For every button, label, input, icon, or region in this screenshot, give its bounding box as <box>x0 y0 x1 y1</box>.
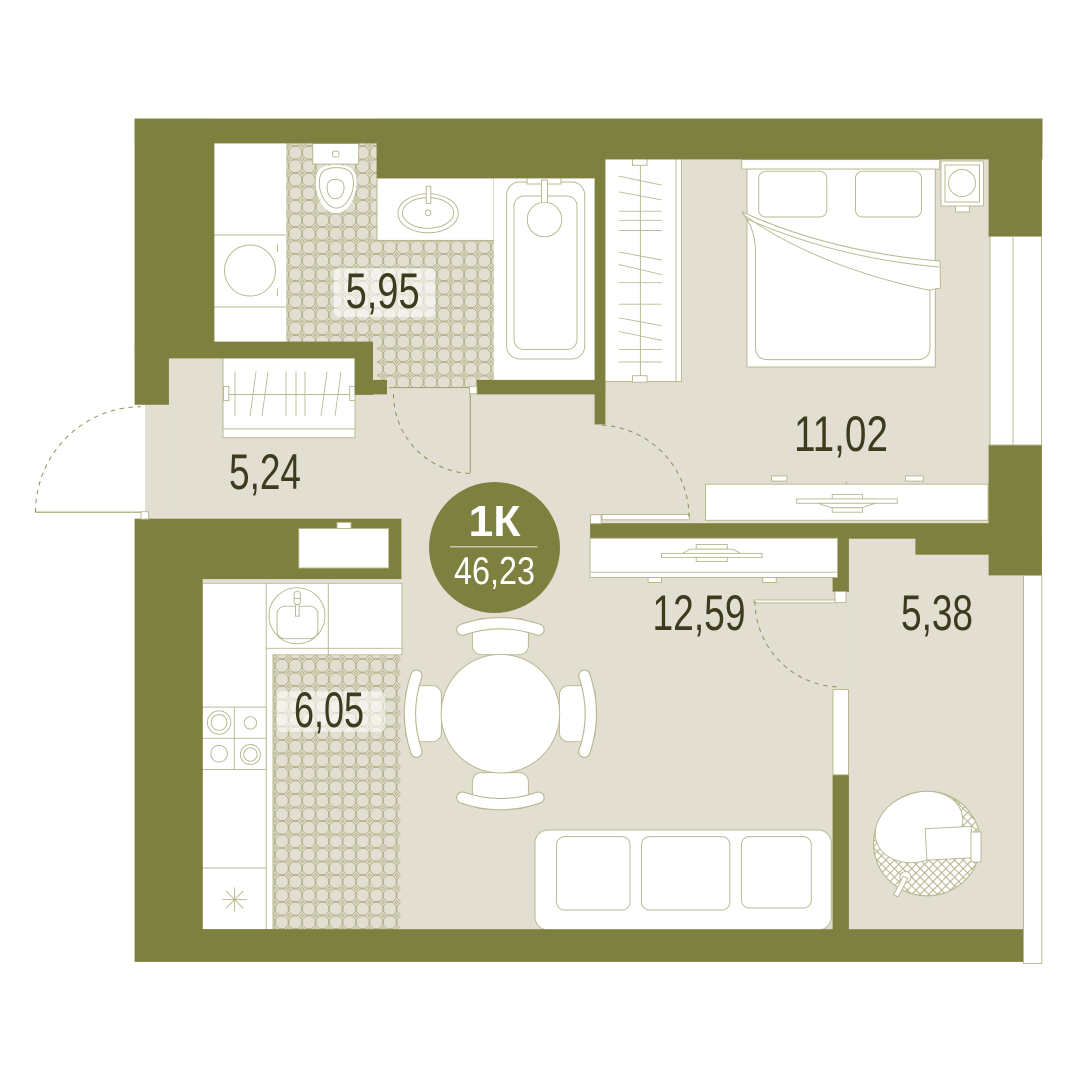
svg-text:5,24: 5,24 <box>229 444 301 500</box>
svg-text:6,05: 6,05 <box>294 682 364 738</box>
svg-text:5,95: 5,95 <box>346 263 420 319</box>
svg-text:5,38: 5,38 <box>901 585 973 641</box>
svg-text:46,23: 46,23 <box>454 550 535 593</box>
svg-text:11,02: 11,02 <box>794 406 888 462</box>
svg-text:1К: 1К <box>469 497 521 546</box>
svg-text:12,59: 12,59 <box>653 585 746 641</box>
